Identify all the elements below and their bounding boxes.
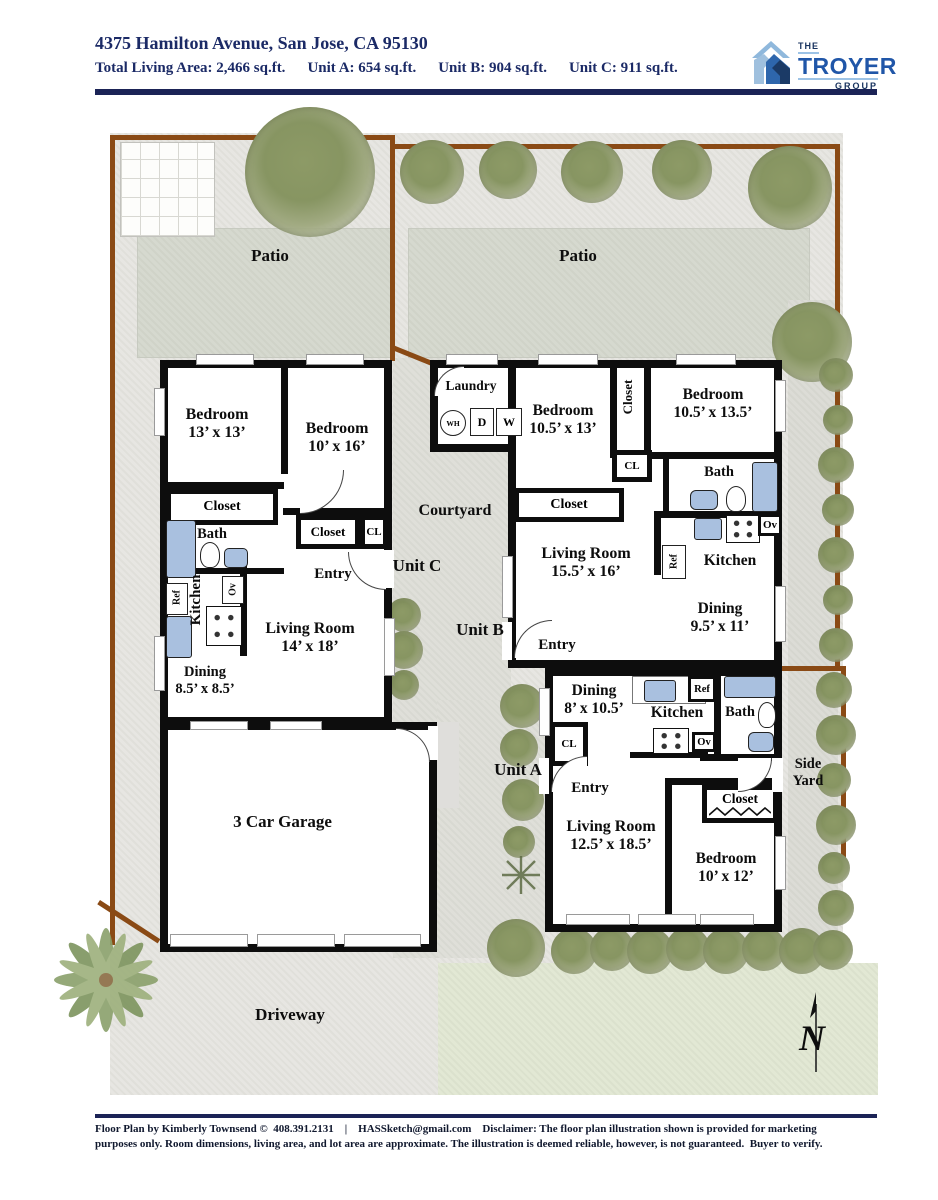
kitchen-sink	[694, 518, 722, 540]
wall	[281, 366, 288, 474]
unit-a-label: Unit A	[492, 760, 544, 779]
unit-b-living-label: Living Room 15.5’ x 16’	[537, 545, 635, 581]
window	[566, 914, 630, 925]
stat-unit-b: Unit B: 904 sq.ft.	[438, 60, 547, 76]
window	[775, 380, 786, 432]
courtyard-label: Courtyard	[405, 502, 505, 520]
stat-total: Total Living Area: 2,466 sq.ft.	[95, 60, 285, 76]
unit-c-bedroom1-label: Bedroom 13’ x 13’	[172, 406, 262, 442]
window	[306, 354, 364, 365]
garage-door	[170, 934, 248, 947]
room-dims: 8’ x 10.5’	[564, 700, 624, 717]
window	[270, 721, 322, 730]
patio-left-label: Patio	[232, 246, 308, 265]
window	[502, 556, 513, 618]
sink	[726, 486, 746, 512]
header-rule	[95, 89, 877, 95]
kitchen-sink	[644, 680, 676, 702]
wall	[665, 778, 672, 924]
room-label: CL	[561, 738, 576, 750]
room-name: Bedroom	[683, 386, 744, 403]
unit-a-ref: Ref	[688, 676, 716, 702]
fence-top-right	[394, 144, 840, 149]
fence-top-left	[110, 135, 394, 140]
logo-house-icon	[750, 38, 794, 86]
page-title: 4375 Hamilton Avenue, San Jose, CA 95130	[95, 33, 695, 54]
unit-c-cl: CL	[360, 515, 388, 549]
toilet	[690, 490, 718, 510]
garage-label: 3 Car Garage	[195, 812, 370, 831]
stove	[653, 728, 689, 754]
door-opening	[428, 726, 438, 760]
appliance-label: D	[478, 415, 487, 430]
fence-left	[110, 135, 115, 945]
room-dims: 14’ x 18’	[281, 638, 338, 655]
room-dims: 12.5’ x 18.5’	[570, 836, 651, 853]
wall	[650, 452, 782, 459]
unit-c-kitchen-label: Kitchen	[189, 555, 205, 645]
window	[446, 354, 498, 365]
stat-unit-a: Unit A: 654 sq.ft.	[307, 60, 416, 76]
unit-b-dining-label: Dining 9.5’ x 11’	[668, 600, 772, 635]
wall	[196, 568, 284, 574]
window	[384, 618, 395, 676]
fence-right	[835, 144, 840, 670]
room-label: CL	[366, 526, 381, 538]
unit-c-ref-label: Ref	[172, 578, 183, 618]
wall	[610, 366, 617, 458]
room-label: Closet	[722, 791, 758, 807]
window	[154, 388, 165, 436]
stove	[726, 515, 760, 543]
appliance-label: Ov	[697, 737, 710, 748]
unit-b-closet-tall-label: Closet	[621, 357, 635, 437]
room-name: Dining	[184, 664, 226, 680]
side-yard-label: Side Yard	[784, 756, 832, 789]
room-name: Living Room	[566, 818, 655, 835]
patio-tiles	[120, 142, 215, 237]
room-name: Living Room	[541, 545, 630, 562]
unit-c-closet2: Closet	[296, 515, 360, 549]
fence-sideyard-right	[841, 666, 846, 871]
unit-b-label: Unit B	[455, 620, 505, 639]
palm-tree	[38, 912, 174, 1048]
toilet	[748, 732, 774, 752]
unit-a-bedroom-label: Bedroom 10’ x 12’	[674, 850, 778, 885]
stat-unit-c: Unit C: 911 sq.ft.	[569, 60, 678, 76]
garage-door	[344, 934, 421, 947]
appliance-label: WH	[446, 419, 459, 428]
driveway-label: Driveway	[238, 1005, 342, 1024]
fence-sideyard-top	[782, 666, 846, 671]
window	[638, 914, 696, 925]
room-dims: 10.5’ x 13.5’	[674, 404, 753, 421]
water-heater: WH	[440, 410, 466, 436]
unit-a-bath-label: Bath	[712, 704, 768, 721]
sink	[224, 548, 248, 568]
footer-disclaimer: Floor Plan by Kimberly Townsend © 408.39…	[95, 1122, 847, 1153]
fence-mid	[390, 135, 395, 361]
wall	[283, 508, 386, 515]
unit-b-ref-label: Ref	[669, 542, 680, 582]
unit-b-kitchen-label: Kitchen	[686, 552, 774, 570]
unit-a-kitchen-label: Kitchen	[634, 704, 720, 722]
appliance-label: Ref	[694, 684, 710, 695]
room-name: Dining	[698, 600, 743, 617]
window	[676, 354, 736, 365]
unit-c-bath-label: Bath	[186, 526, 238, 543]
room-dims: 10.5’ x 13’	[529, 420, 596, 437]
troyer-group-logo: THE TROYER GROUP	[750, 36, 878, 88]
unit-a-dining-label: Dining 8’ x 10.5’	[550, 682, 638, 717]
room-name: Bedroom	[533, 402, 594, 419]
unit-a-entry-label: Entry	[558, 780, 622, 797]
garage-door	[257, 934, 335, 947]
closet-rod	[709, 807, 771, 817]
garage-side-pad	[437, 722, 459, 808]
room-name: Bedroom	[696, 850, 757, 867]
unit-b-bath-label: Bath	[692, 464, 746, 481]
unit-c-ov-label: Ov	[228, 571, 239, 609]
room-label: Closet	[203, 499, 240, 515]
star-plant	[500, 854, 542, 896]
unit-c-living-label: Living Room 14’ x 18’	[264, 620, 356, 656]
unit-b-entry-label: Entry	[526, 637, 588, 654]
unit-b-bedroom2-label: Bedroom 10.5’ x 13.5’	[650, 386, 776, 421]
unit-b-oven: Ov	[758, 514, 782, 536]
room-label: Closet	[311, 524, 346, 540]
room-dims: 15.5’ x 16’	[551, 563, 620, 580]
room-label: Closet	[550, 497, 587, 513]
unit-b-closet: Closet	[514, 488, 624, 522]
room-dims: 10’ x 16’	[308, 438, 365, 455]
unit-b-cl: CL	[612, 450, 652, 482]
unit-b-laundry-label: Laundry	[432, 378, 510, 393]
room-name: Bedroom	[186, 406, 249, 423]
room-name: Dining	[572, 682, 617, 699]
living-area-stats: Total Living Area: 2,466 sq.ft. Unit A: …	[95, 59, 735, 77]
unit-c-dining-label: Dining 8.5’ x 8.5’	[157, 664, 253, 697]
room-name: Bedroom	[306, 420, 369, 437]
room-dims: 13’ x 13’	[188, 424, 245, 441]
appliance-label: W	[503, 415, 515, 430]
dryer: D	[470, 408, 494, 436]
compass: N	[786, 990, 842, 1078]
room-dims: 9.5’ x 11’	[691, 618, 750, 635]
unit-c-label: Unit C	[392, 556, 442, 575]
unit-c-bedroom2-label: Bedroom 10’ x 16’	[292, 420, 382, 456]
patio-right-label: Patio	[540, 246, 616, 265]
window	[196, 354, 254, 365]
compass-n-label: N	[792, 1018, 832, 1059]
room-label: CL	[624, 460, 639, 472]
stove	[206, 606, 242, 646]
window	[538, 354, 598, 365]
unit-c-entry-label: Entry	[303, 566, 363, 583]
unit-b-bedroom1-label: Bedroom 10.5’ x 13’	[517, 402, 609, 437]
room-name: Living Room	[265, 620, 354, 637]
shower	[752, 462, 778, 512]
wall	[166, 482, 284, 489]
wall	[654, 511, 661, 575]
bathtub	[724, 676, 776, 698]
window	[539, 688, 550, 736]
unit-a-living-label: Living Room 12.5’ x 18.5’	[556, 818, 666, 854]
room-dims: 10’ x 12’	[698, 868, 754, 885]
logo-troyer: TROYER	[798, 54, 878, 78]
floor-plan-page: 4375 Hamilton Avenue, San Jose, CA 95130…	[0, 0, 938, 1200]
unit-a-oven: Ov	[692, 732, 716, 752]
side-path	[788, 300, 838, 960]
door-opening	[772, 758, 783, 792]
window	[775, 586, 786, 642]
room-dims: 8.5’ x 8.5’	[175, 681, 234, 697]
window	[700, 914, 754, 925]
wall	[663, 459, 669, 511]
footer-rule	[95, 1114, 877, 1118]
appliance-label: Ov	[763, 519, 777, 531]
window	[190, 721, 248, 730]
